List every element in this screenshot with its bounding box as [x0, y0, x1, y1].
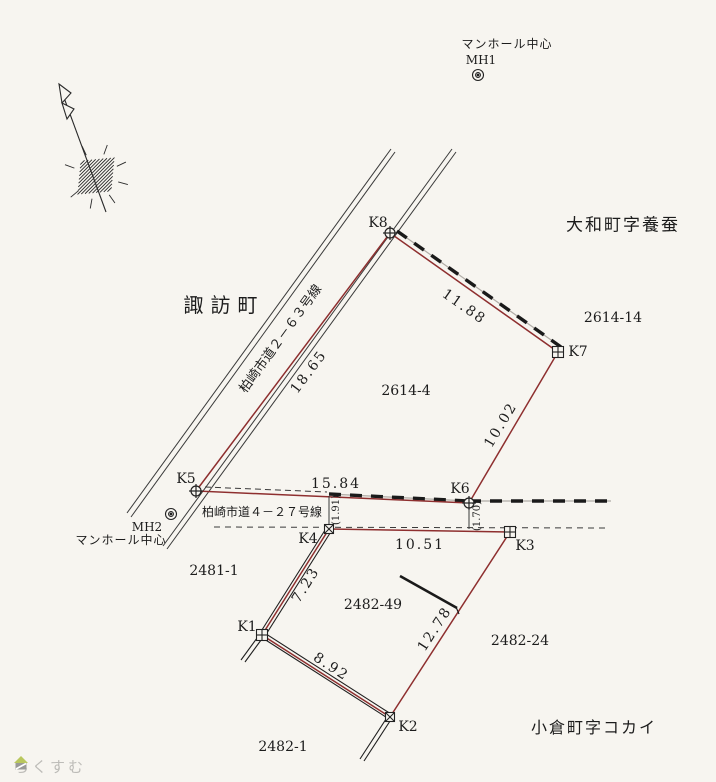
watermark: らくすむ — [14, 756, 86, 777]
parcel-label-2482-49: 2482-49 — [344, 598, 402, 612]
mh2-id: MH2 — [132, 521, 162, 533]
offset-label-1-70: (1.70) — [473, 501, 483, 531]
manhole-mh1-icon — [473, 70, 484, 81]
parcel-label-2482-24: 2482-24 — [491, 634, 549, 648]
parcel-label-2482-1: 2482-1 — [258, 740, 307, 754]
cadastral-map-sheet: マンホール中心 MH1 大和町字養蚕 諏訪町 小倉町字コカイ 柏崎市道２－６３号… — [0, 0, 716, 782]
north-arrow-starburst — [65, 145, 128, 209]
survey-marker-k7 — [553, 347, 564, 358]
offset-ties — [329, 496, 469, 529]
dimension-15-84: 15.84 — [311, 477, 361, 491]
parcel-label-2614-14: 2614-14 — [584, 311, 642, 325]
survey-marker-k1 — [257, 630, 268, 641]
point-label-k1: K1 — [237, 620, 256, 634]
point-label-k4: K4 — [298, 532, 317, 546]
district-label-ogura: 小倉町字コカイ — [531, 720, 657, 736]
house-icon — [14, 756, 28, 770]
parcel-label-2614-4: 2614-4 — [381, 384, 430, 398]
road-263-edges — [127, 149, 456, 549]
district-label-yamato: 大和町字養蚕 — [566, 218, 680, 235]
parcel-label-2481-1: 2481-1 — [189, 564, 238, 578]
manhole-mh2-icon — [166, 509, 177, 520]
point-label-k3: K3 — [515, 539, 534, 553]
point-label-k7: K7 — [568, 345, 587, 359]
survey-marker-k3 — [505, 527, 516, 538]
road-label-427: 柏崎市道４－２７号線 — [202, 506, 322, 518]
fence-line-k8-k7 — [397, 231, 561, 347]
point-label-k5: K5 — [176, 472, 195, 486]
survey-marker-k4 — [325, 525, 334, 534]
offset-label-1-91: (1.91) — [332, 495, 342, 525]
structure-lines-lower-parcel — [241, 527, 392, 761]
survey-marker-k2 — [386, 713, 395, 722]
point-label-k8: K8 — [368, 216, 387, 230]
mh2-caption: マンホール中心 — [75, 534, 166, 546]
point-label-k2: K2 — [398, 720, 417, 734]
dimension-10-51: 10.51 — [395, 538, 445, 552]
point-label-k6: K6 — [450, 482, 469, 496]
mh1-caption: マンホール中心 — [461, 38, 552, 50]
parcel-2482-49-boundary — [262, 529, 510, 717]
district-label-suwa: 諏訪町 — [184, 295, 265, 315]
mh1-id: MH1 — [466, 54, 496, 66]
map-linework — [0, 0, 716, 782]
